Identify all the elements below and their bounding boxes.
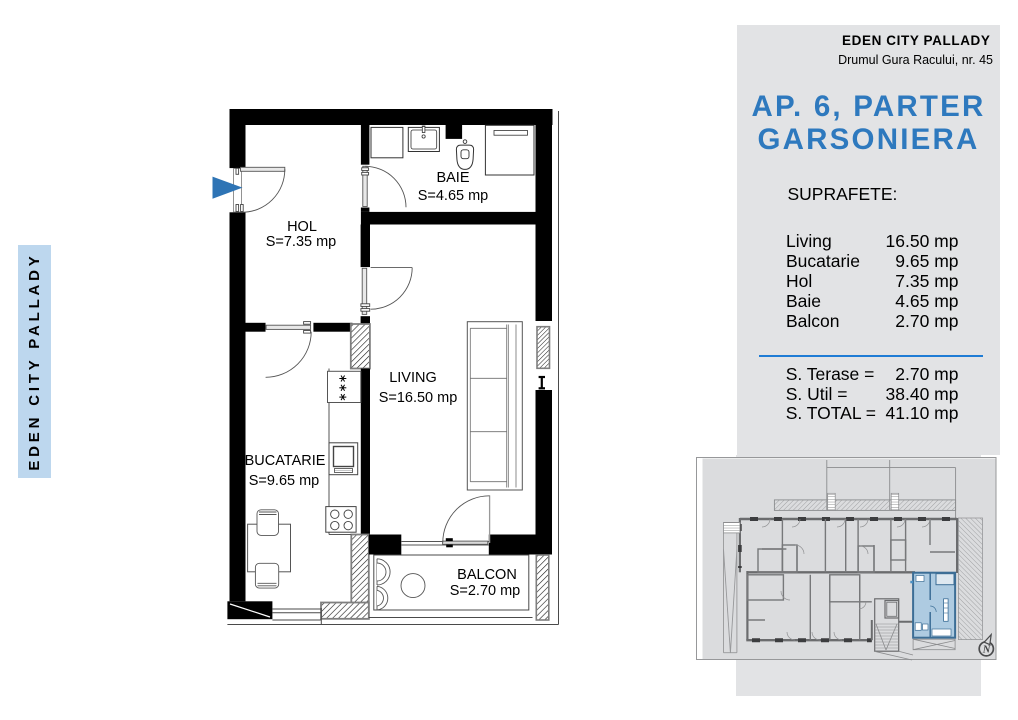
svg-text:N: N	[982, 645, 991, 656]
